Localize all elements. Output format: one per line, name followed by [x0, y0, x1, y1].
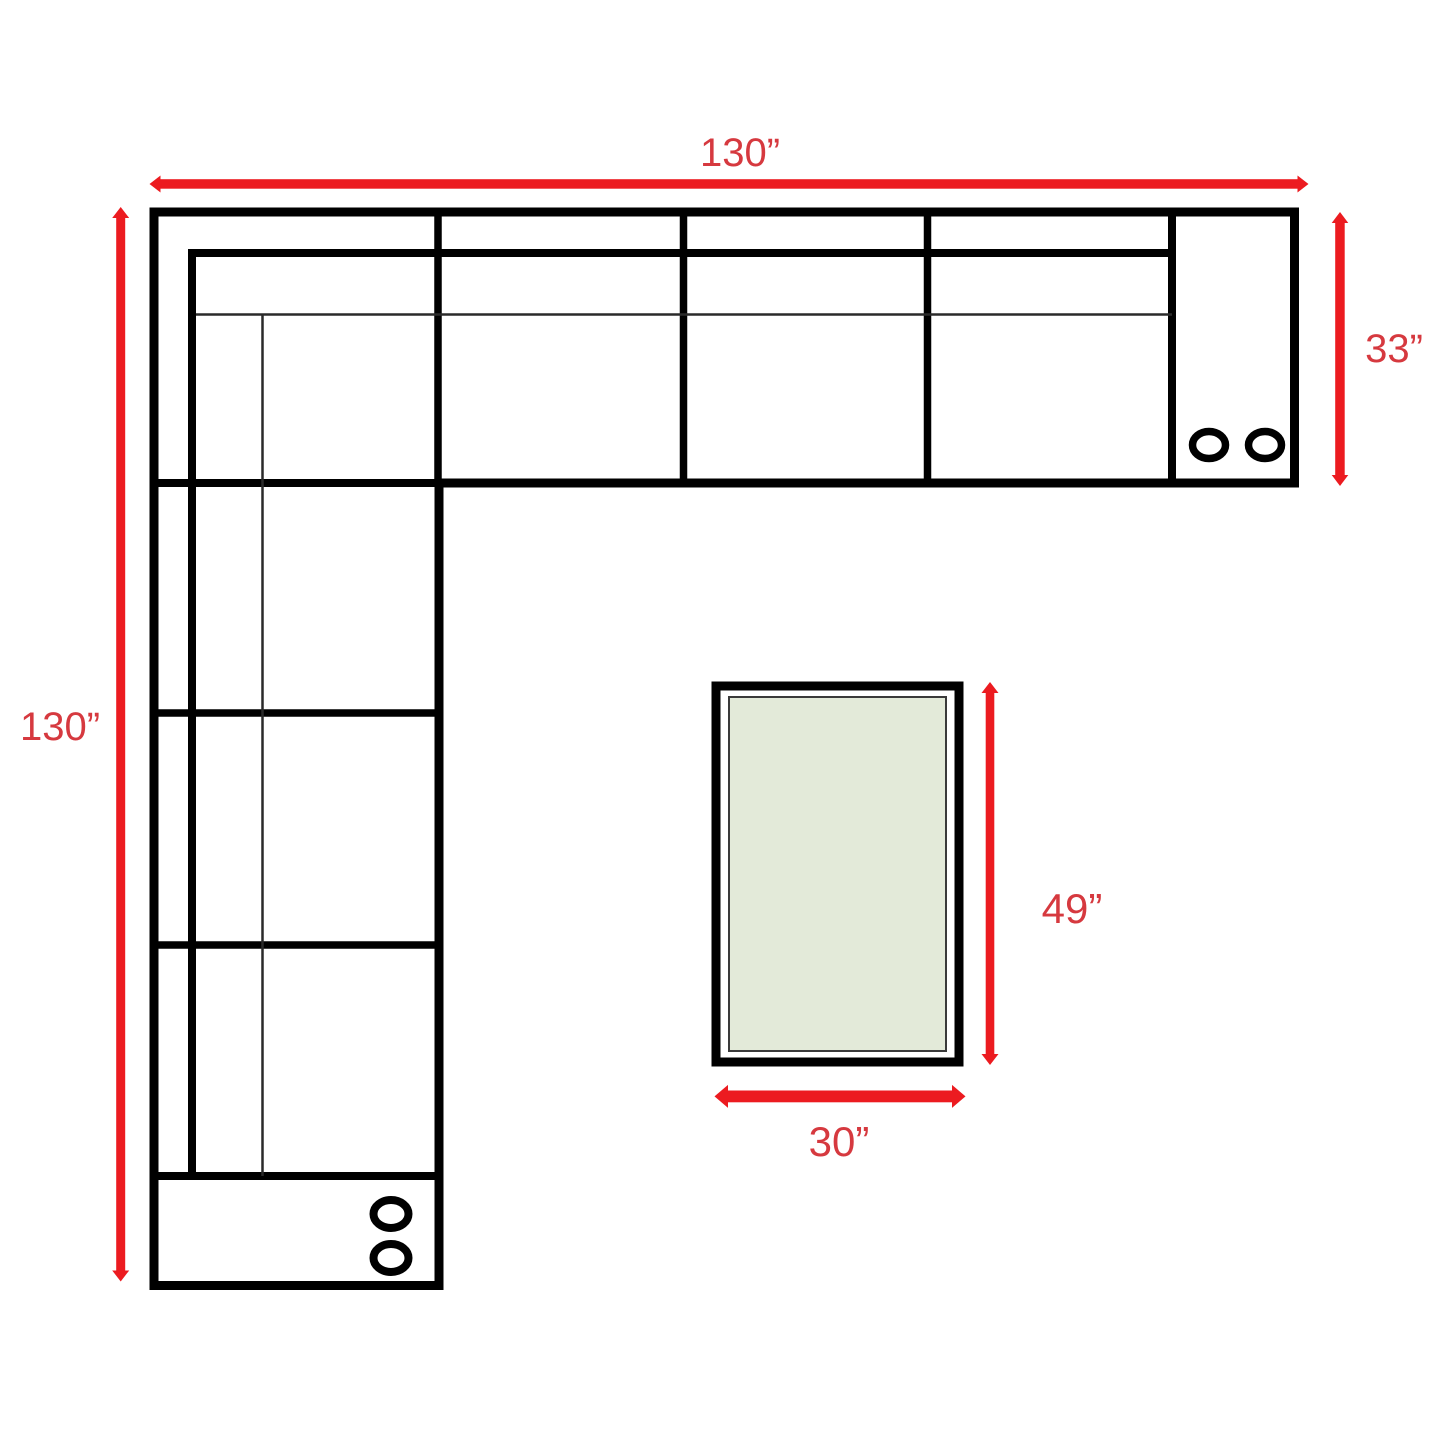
svg-text:130”: 130”	[20, 705, 100, 749]
svg-text:33”: 33”	[1365, 327, 1423, 371]
svg-text:49”: 49”	[1042, 885, 1103, 932]
svg-text:30”: 30”	[809, 1118, 870, 1165]
svg-text:130”: 130”	[700, 131, 780, 175]
